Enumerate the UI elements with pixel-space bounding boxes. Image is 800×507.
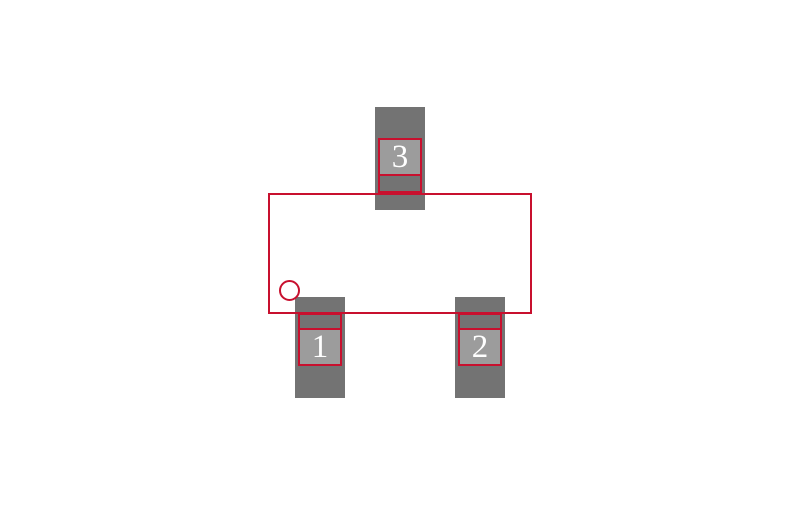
pad-1-contact: 1 [298, 328, 342, 366]
pad-2-contact: 2 [458, 328, 502, 366]
pad-3-contact: 3 [378, 138, 422, 176]
pad-2-number: 2 [472, 331, 489, 364]
footprint-diagram: 3 1 2 [0, 0, 800, 507]
component-body-outline [268, 193, 532, 314]
pad-3-number: 3 [392, 141, 409, 174]
pin1-indicator-icon [279, 280, 300, 301]
pad-1-number: 1 [312, 331, 329, 364]
